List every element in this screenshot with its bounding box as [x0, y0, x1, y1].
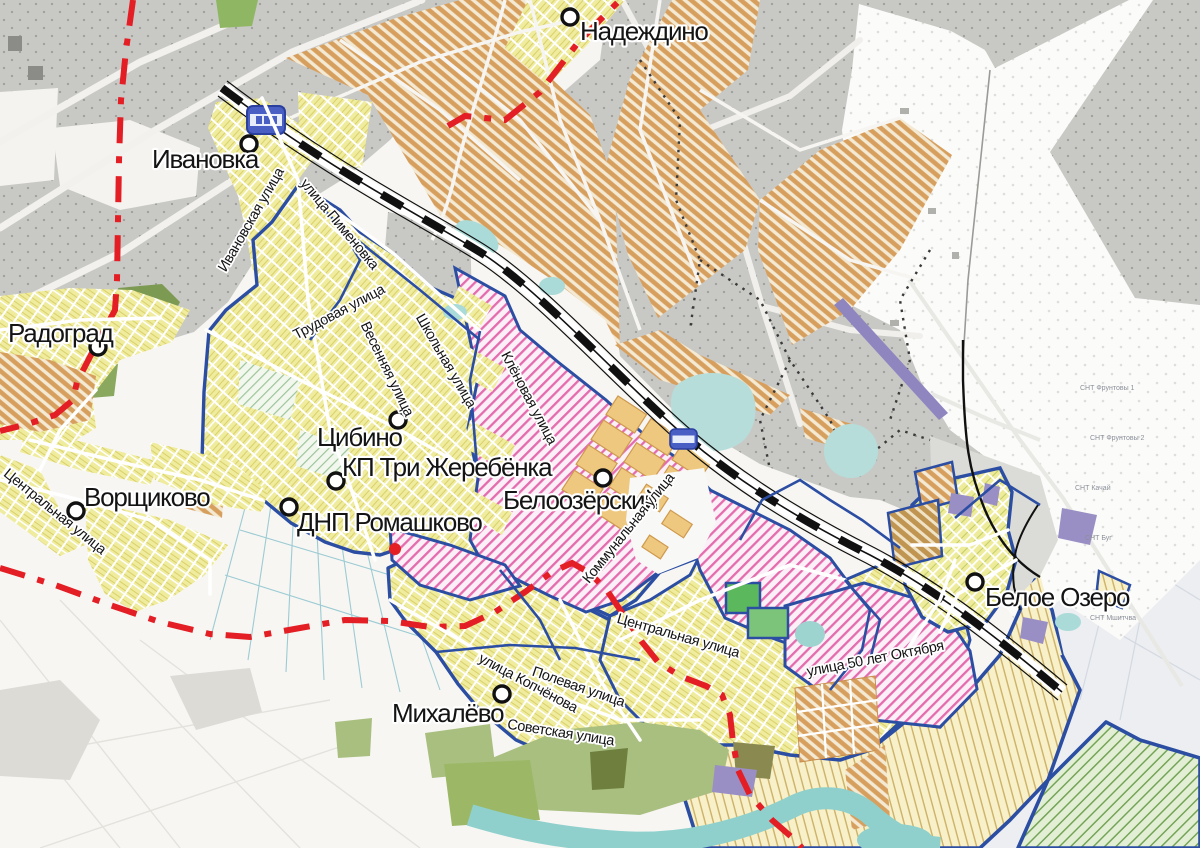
svg-text:Ивановка: Ивановка	[152, 144, 260, 174]
svg-text:Ворщиково: Ворщиково	[84, 482, 210, 512]
svg-text:КП Три Жеребёнка: КП Три Жеребёнка	[342, 452, 553, 482]
svg-text:Белое Озеро: Белое Озеро	[985, 582, 1130, 612]
svg-text:СНТ Фрунтовы 1: СНТ Фрунтовы 1	[1080, 385, 1135, 392]
svg-text:СНТ Буг: СНТ Буг	[1085, 535, 1112, 542]
svg-text:СНТ Качай: СНТ Качай	[1075, 484, 1111, 492]
svg-text:ДНП Ромашково: ДНП Ромашково	[297, 507, 482, 537]
svg-text:СНТ Мшитчва: СНТ Мшитчва	[1090, 615, 1136, 622]
svg-text:Цибино: Цибино	[317, 422, 403, 452]
svg-text:СНТ Фрунтовы 2: СНТ Фрунтовы 2	[1090, 435, 1145, 442]
svg-text:Радоград: Радоград	[8, 318, 114, 348]
svg-text:Надеждино: Надеждино	[580, 16, 708, 46]
svg-text:Михалёво: Михалёво	[392, 698, 504, 728]
